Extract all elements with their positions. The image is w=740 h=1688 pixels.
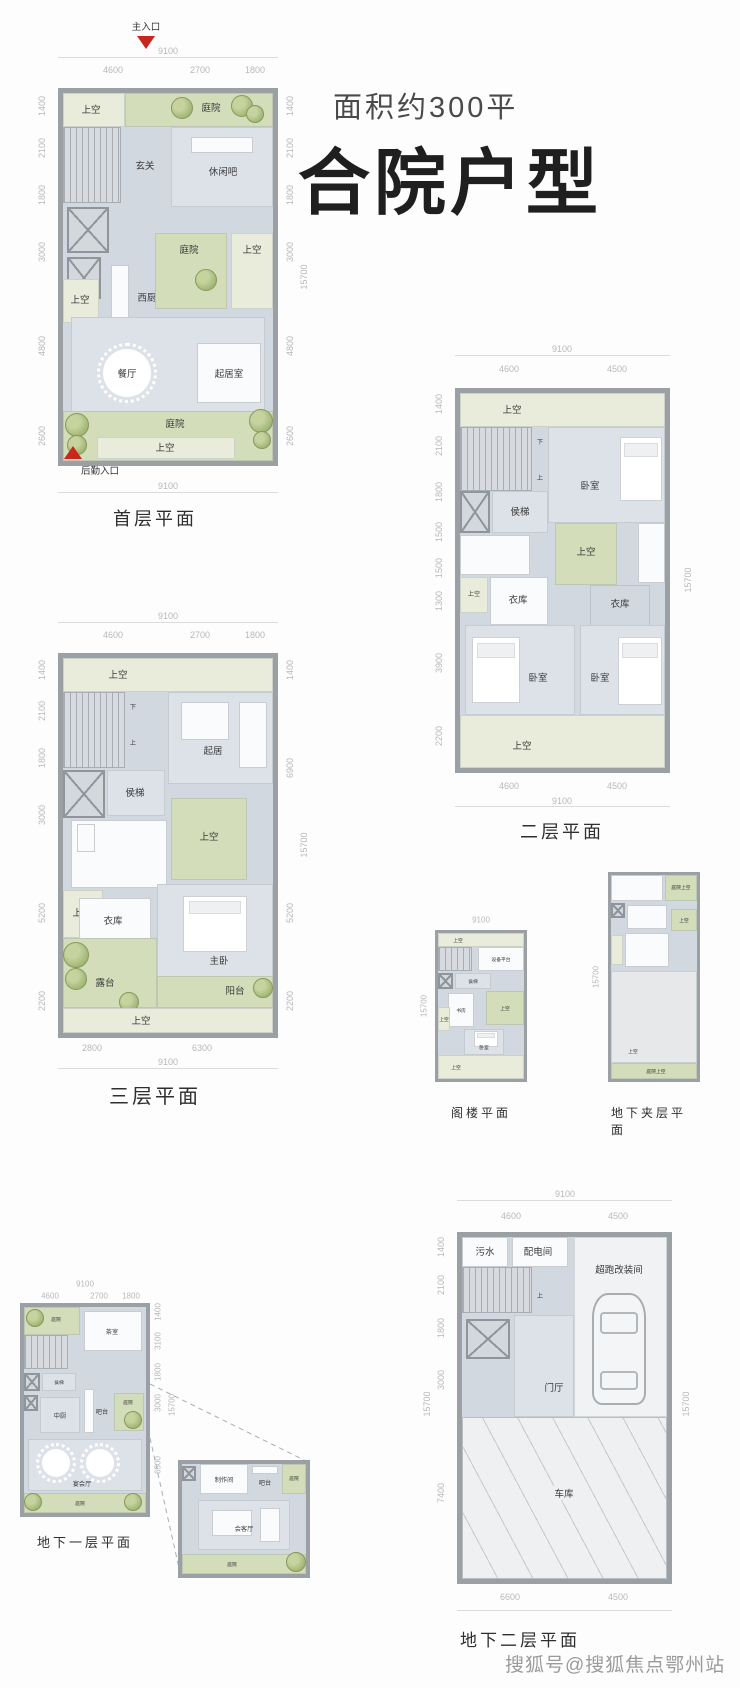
room-label: 庭院 — [123, 1398, 133, 1405]
room-label: 庭院上空 — [646, 1067, 665, 1074]
plan-basement-2: 污水 配电间 超跑改装间 上 门厅 车库 — [457, 1232, 672, 1584]
bar-counter — [84, 1389, 94, 1433]
dim-label: 1800 — [434, 482, 444, 502]
stair-up-label: 上 — [130, 737, 136, 746]
elevator-icon — [182, 1466, 196, 1481]
room-label: 上空 — [468, 588, 480, 597]
tree-icon — [286, 1552, 306, 1572]
main-entrance-arrow-icon — [137, 36, 155, 49]
dim-label: 1500 — [434, 522, 444, 542]
dim-label: 2100 — [285, 138, 295, 158]
room-label: 起居 — [203, 743, 222, 757]
plan-title-first-floor: 首层平面 — [113, 505, 197, 531]
dim-label: 2100 — [37, 701, 47, 721]
room-label: 起居室 — [215, 366, 244, 380]
dim-label: 3000 — [37, 242, 47, 262]
dim-label: 1800 — [245, 630, 265, 640]
tree-icon — [253, 431, 271, 449]
room-label: 中厨 — [54, 1410, 66, 1419]
dim-label: 4600 — [41, 1292, 59, 1301]
dim-label: 1400 — [37, 660, 47, 680]
dimension-line — [455, 806, 670, 807]
room-label: 餐厅 — [117, 366, 136, 380]
plan-title-second-floor: 二层平面 — [520, 818, 604, 844]
room-label: 侯梯 — [468, 977, 478, 984]
elevator-icon — [460, 491, 490, 533]
plan-second-floor: 上空 下 上 卧室 侯梯 上空 衣库 上空 衣库 卧室 卧室 上空 — [455, 388, 670, 773]
room-label: 休闲吧 — [209, 164, 238, 178]
car-icon — [592, 1293, 646, 1405]
void-area — [438, 933, 524, 947]
dim-label: 9100 — [76, 1280, 94, 1289]
room-label: 卧室 — [590, 670, 609, 684]
dim-label: 1400 — [285, 96, 295, 116]
dim-label: 2200 — [285, 991, 295, 1011]
bathroom — [638, 523, 665, 583]
dim-label: 4600 — [103, 630, 123, 640]
room-label: 会客厅 — [235, 1523, 254, 1532]
dim-label: 15700 — [168, 1394, 177, 1416]
elevator-icon — [67, 207, 109, 253]
room-label: 衣库 — [610, 596, 629, 610]
dim-label: 7400 — [436, 1483, 446, 1503]
dim-label: 3000 — [37, 805, 47, 825]
stairs-icon — [63, 692, 125, 768]
room-label: 书房 — [456, 1006, 466, 1013]
stair-up-label: 上 — [537, 472, 543, 481]
dim-label: 2700 — [90, 1292, 108, 1301]
dimension-line — [58, 57, 278, 58]
room-label: 宴会厅 — [73, 1478, 92, 1487]
dim-label: 2600 — [285, 426, 295, 446]
dim-label: 4600 — [499, 781, 519, 791]
dim-label: 2100 — [436, 1275, 446, 1295]
dim-label: 3000 — [285, 242, 295, 262]
dim-label: 1400 — [285, 660, 295, 680]
room-label: 上空 — [70, 292, 89, 306]
dim-label: 1500 — [434, 558, 444, 578]
stairs-icon — [24, 1335, 68, 1369]
dim-label: 5200 — [37, 903, 47, 923]
bed — [620, 437, 662, 501]
void-area — [460, 715, 665, 768]
room-label: 衣库 — [103, 913, 122, 927]
room-label: 上空 — [453, 936, 463, 943]
dim-label: 1800 — [436, 1318, 446, 1338]
dim-label: 1800 — [37, 185, 47, 205]
room-label: 玄关 — [135, 158, 154, 172]
plan-title-third-floor: 三层平面 — [109, 1080, 201, 1109]
dim-label: 9100 — [555, 1189, 575, 1199]
tree-icon — [249, 409, 273, 433]
room-label: 上空 — [199, 829, 218, 843]
bar-counter — [252, 1466, 278, 1474]
dim-label: 2600 — [37, 426, 47, 446]
dim-label: 6300 — [192, 1043, 212, 1053]
room-label: 衣库 — [508, 592, 527, 606]
dim-label: 15700 — [422, 1391, 432, 1416]
dim-label: 9100 — [552, 344, 572, 354]
room-label: 庭院 — [227, 1560, 237, 1567]
entry-hall-area — [514, 1315, 574, 1417]
void-area — [63, 1008, 273, 1033]
room-label: 上空 — [242, 242, 261, 256]
tree-icon — [253, 978, 273, 998]
room-label: 庭院 — [165, 416, 184, 430]
room-label: 上空 — [108, 667, 127, 681]
dim-label: 1400 — [37, 96, 47, 116]
dim-label: 9100 — [472, 916, 490, 925]
tree-icon — [26, 1309, 44, 1327]
dim-label: 2700 — [190, 630, 210, 640]
room-label: 门厅 — [544, 1380, 563, 1394]
tree-icon — [65, 968, 87, 990]
round-table — [86, 1449, 114, 1477]
dim-label: 15700 — [592, 966, 601, 988]
tree-icon — [124, 1411, 142, 1429]
service-entrance-label: 后勤入口 — [81, 463, 119, 477]
room-label: 污水 — [475, 1244, 494, 1258]
watermark: 搜狐号@搜狐焦点鄂州站 — [505, 1650, 725, 1677]
dim-label: 2800 — [82, 1043, 102, 1053]
plan-attic: 上空 设备平台 侯梯 书房 上空 上空 卧室 上空 — [435, 930, 527, 1082]
room-label: 庭院 — [289, 1474, 299, 1481]
room-label: 超跑改装间 — [595, 1262, 643, 1276]
void-area — [460, 393, 665, 427]
room — [627, 905, 667, 929]
dim-label: 6600 — [500, 1592, 520, 1602]
bath-fixture — [77, 824, 95, 852]
dimension-line — [58, 492, 278, 493]
room-label: 上空 — [502, 402, 521, 416]
area-label: 面积约300平 — [333, 84, 518, 126]
bed — [618, 637, 662, 705]
dimension-line — [58, 622, 278, 623]
bathroom — [460, 535, 530, 575]
room-label: 侯梯 — [125, 785, 144, 799]
plan-first-floor: 上空 庭院 玄关 休闲吧 西厨 上空 庭院 上空 餐厅 起居室 庭院 上空 — [58, 88, 278, 466]
dim-label: 2100 — [434, 436, 444, 456]
dim-label: 2200 — [434, 726, 444, 746]
tree-icon — [63, 942, 89, 968]
void-area — [611, 971, 697, 1063]
service-entrance-arrow-icon — [64, 446, 82, 459]
room-label: 上空 — [500, 1004, 510, 1011]
room-label: 卧室 — [479, 1043, 489, 1050]
room-label: 制作间 — [215, 1474, 234, 1483]
table — [181, 702, 229, 740]
plan-title-basement-mezzanine: 地下夹层平面 — [611, 1104, 697, 1138]
room-label: 上空 — [81, 102, 100, 116]
room — [625, 933, 669, 967]
dim-label: 2100 — [37, 138, 47, 158]
room-label: 西厨 — [137, 290, 156, 304]
dim-label: 1800 — [154, 1363, 163, 1381]
void-area — [611, 935, 623, 965]
room-label: 卧室 — [580, 478, 599, 492]
dim-label: 4500 — [607, 781, 627, 791]
plan-title-basement-2: 地下二层平面 — [460, 1626, 580, 1651]
room-label: 庭院 — [179, 242, 198, 256]
room-label: 上空 — [512, 738, 531, 752]
dimension-line — [455, 355, 670, 356]
dim-label: 1800 — [285, 185, 295, 205]
room-label: 上空 — [451, 1063, 461, 1070]
room-label: 庭院 — [75, 1499, 85, 1506]
dim-label: 15700 — [420, 995, 429, 1017]
room-label: 侯梯 — [54, 1378, 64, 1385]
elevator-icon — [466, 1319, 510, 1359]
dim-label: 4500 — [608, 1592, 628, 1602]
room-label: 庭院 — [51, 1315, 61, 1322]
tree-icon — [246, 105, 264, 123]
dim-label: 3000 — [154, 1394, 163, 1412]
page: 面积约300平 合院户型 主入口 9100 4600 2700 1800 上空 … — [0, 0, 740, 1688]
void-area — [63, 658, 273, 692]
dim-label: 9100 — [158, 481, 178, 491]
dim-label: 9100 — [158, 611, 178, 621]
plan-basement-callout: 制作间 吧台 庭院 会客厅 庭院 — [178, 1460, 310, 1578]
tree-icon — [195, 269, 217, 291]
room-label: 上空 — [679, 916, 689, 923]
room-label: 茶室 — [106, 1326, 118, 1335]
room-label: 上空 — [576, 544, 595, 558]
dim-label: 1300 — [434, 591, 444, 611]
room-label: 吧台 — [96, 1406, 108, 1415]
room-label: 侯梯 — [510, 504, 529, 518]
dimension-line — [457, 1200, 672, 1201]
room-label: 庭院 — [201, 100, 220, 114]
main-entrance-label: 主入口 — [132, 19, 161, 33]
elevator-icon — [611, 903, 625, 918]
stairs-icon — [438, 947, 472, 971]
room-label: 设备平台 — [491, 955, 510, 962]
dim-label: 4500 — [607, 364, 627, 374]
unit-type-title: 合院户型 — [298, 124, 602, 229]
stair-up-label: 上 — [537, 1290, 543, 1299]
plan-title-attic: 阁楼平面 — [451, 1104, 511, 1121]
dim-label: 3900 — [434, 653, 444, 673]
dim-label: 4600 — [103, 65, 123, 75]
elevator-icon — [24, 1395, 38, 1411]
dim-label: 6900 — [285, 758, 295, 778]
dim-label: 4500 — [608, 1211, 628, 1221]
dimension-line — [58, 1068, 278, 1069]
dim-label: 1400 — [434, 394, 444, 414]
room-label: 阳台 — [225, 983, 244, 997]
bar-table — [191, 137, 253, 153]
dim-label: 4800 — [285, 336, 295, 356]
utility-rooms — [611, 875, 663, 901]
dim-label: 9100 — [158, 1057, 178, 1067]
round-table — [42, 1449, 70, 1477]
dim-label: 9100 — [158, 46, 178, 56]
dim-label: 4600 — [499, 364, 519, 374]
room-label: 吧台 — [259, 1477, 271, 1486]
elevator-icon — [63, 770, 105, 818]
room-label: 上空 — [628, 1047, 638, 1054]
room-label: 露台 — [95, 975, 114, 989]
tree-icon — [124, 1493, 142, 1511]
dim-label: 1800 — [122, 1292, 140, 1301]
dim-label: 15700 — [299, 264, 309, 289]
tree-icon — [24, 1493, 42, 1511]
dim-label: 1400 — [154, 1303, 163, 1321]
dim-label: 2200 — [37, 991, 47, 1011]
room-label: 配电间 — [524, 1244, 553, 1258]
plan-basement-1: 庭院 茶室 侯梯 中厨 吧台 庭院 宴会厅 庭院 — [20, 1303, 150, 1517]
plan-title-basement-1: 地下一层平面 — [37, 1532, 133, 1551]
stairs-icon — [63, 127, 121, 203]
bed — [183, 896, 247, 952]
room-label: 主卧 — [209, 953, 228, 967]
elevator-icon — [438, 973, 453, 989]
room-label: 上空 — [155, 440, 174, 454]
room-label: 卧室 — [528, 670, 547, 684]
dimension-line — [457, 1610, 672, 1611]
tree-icon — [171, 97, 193, 119]
dim-label: 1800 — [245, 65, 265, 75]
stairs-icon — [462, 1267, 532, 1313]
dim-label: 15700 — [299, 832, 309, 857]
room-label: 上空 — [131, 1013, 150, 1027]
bed — [472, 637, 520, 703]
dim-label: 15700 — [681, 1391, 691, 1416]
sofa — [260, 1508, 280, 1542]
tree-icon — [65, 413, 89, 437]
room-label: 车库 — [551, 1486, 576, 1500]
elevator-icon — [24, 1373, 40, 1391]
stair-down-label: 下 — [537, 436, 543, 445]
plan-third-floor: 上空 下 上 起居 侯梯 上空 上空 衣库 主卧 露台 阳台 上空 — [58, 653, 278, 1038]
dim-label: 3000 — [436, 1370, 446, 1390]
dim-label: 6500 — [154, 1456, 163, 1474]
stair-down-label: 下 — [130, 701, 136, 710]
dim-label: 4600 — [501, 1211, 521, 1221]
sofa — [239, 702, 267, 768]
dim-label: 5200 — [285, 903, 295, 923]
dim-label: 1800 — [37, 748, 47, 768]
room-label: 上空 — [439, 1015, 449, 1022]
dim-label: 9100 — [552, 796, 572, 806]
dim-label: 15700 — [683, 567, 693, 592]
plan-basement-mezzanine: 庭院上空 上空 上空 庭院上空 — [608, 872, 700, 1082]
dim-label: 3100 — [154, 1332, 163, 1350]
dim-label: 1400 — [436, 1237, 446, 1257]
dim-label: 2700 — [190, 65, 210, 75]
room-label: 庭院上空 — [671, 883, 690, 890]
stairs-icon — [460, 427, 532, 491]
dim-label: 4800 — [37, 336, 47, 356]
